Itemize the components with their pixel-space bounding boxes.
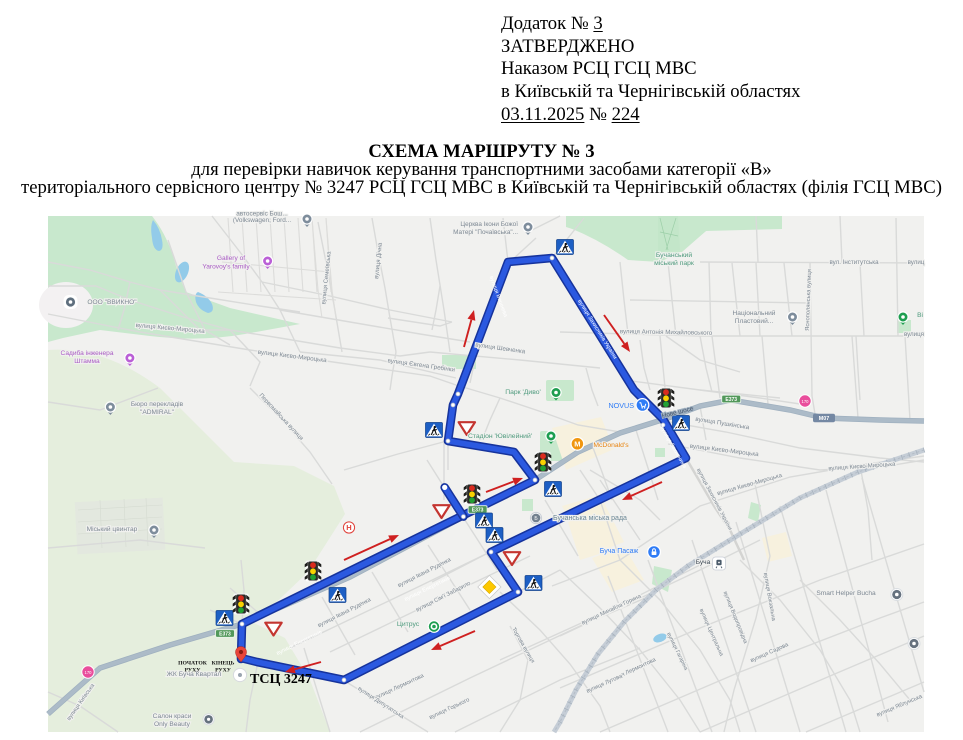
svg-text:ТСЦ 3247: ТСЦ 3247: [250, 672, 312, 687]
svg-text:вулиця: вулиця: [904, 331, 924, 338]
svg-text:Н: Н: [346, 523, 351, 532]
svg-text:Бучанська міська рада: Бучанська міська рада: [553, 514, 627, 522]
svg-text:автосервіс Бош...: автосервіс Бош...: [236, 210, 288, 218]
svg-text:РУХУ: РУХУ: [185, 668, 202, 674]
svg-text:Штамма: Штамма: [74, 358, 100, 365]
svg-text:NOVUS: NOVUS: [608, 401, 634, 410]
svg-text:ООО "ВВИКНО": ООО "ВВИКНО": [87, 299, 137, 306]
svg-text:Стадіон 'Ювілейний': Стадіон 'Ювілейний': [468, 432, 532, 440]
svg-text:Пластовий...: Пластовий...: [735, 317, 774, 325]
svg-text:170: 170: [802, 399, 810, 404]
svg-text:вулиц: вулиц: [908, 259, 925, 266]
svg-text:Садиба інженера: Садиба інженера: [61, 349, 114, 357]
svg-text:РУХУ: РУХУ: [215, 668, 232, 674]
svg-text:M: M: [574, 439, 580, 448]
svg-text:Салон краси: Салон краси: [153, 713, 192, 720]
svg-text:Ві: Ві: [917, 311, 923, 319]
svg-text:Цитрус: Цитрус: [397, 621, 420, 628]
svg-text:Yarovoy's family: Yarovoy's family: [202, 264, 250, 271]
svg-text:Буча Пасаж: Буча Пасаж: [600, 548, 639, 555]
svg-text:Бучанський: Бучанський: [656, 251, 692, 259]
svg-text:(Volkswagen, Ford...: (Volkswagen, Ford...: [233, 217, 291, 224]
svg-text:Буча: Буча: [696, 559, 711, 566]
svg-text:Міський цвинтар: Міський цвинтар: [87, 525, 138, 533]
svg-text:Матері "Почаївська"...: Матері "Почаївська"...: [453, 228, 518, 236]
svg-text:Only Beauty: Only Beauty: [154, 721, 191, 728]
svg-text:170: 170: [85, 670, 93, 675]
svg-text:McDonald's: McDonald's: [593, 442, 629, 449]
svg-text:Gallery of: Gallery of: [217, 255, 245, 262]
svg-text:міський парк: міський парк: [654, 259, 694, 267]
svg-text:КІНЕЦЬ: КІНЕЦЬ: [212, 661, 235, 667]
svg-text:вул. Інститутська: вул. Інститутська: [829, 259, 879, 266]
svg-text:Smart Helper Bucha: Smart Helper Bucha: [816, 590, 876, 597]
svg-text:М07: М07: [819, 416, 830, 422]
svg-text:"ADMIRAL": "ADMIRAL": [140, 409, 175, 416]
svg-text:Церква Ікони Божої: Церква Ікони Божої: [460, 221, 518, 228]
svg-text:Національний: Національний: [733, 309, 776, 317]
svg-text:ПОЧАТОК: ПОЧАТОК: [178, 661, 208, 667]
svg-text:Бюро перекладів: Бюро перекладів: [131, 400, 184, 408]
svg-text:Парк 'Диво': Парк 'Диво': [505, 389, 541, 396]
